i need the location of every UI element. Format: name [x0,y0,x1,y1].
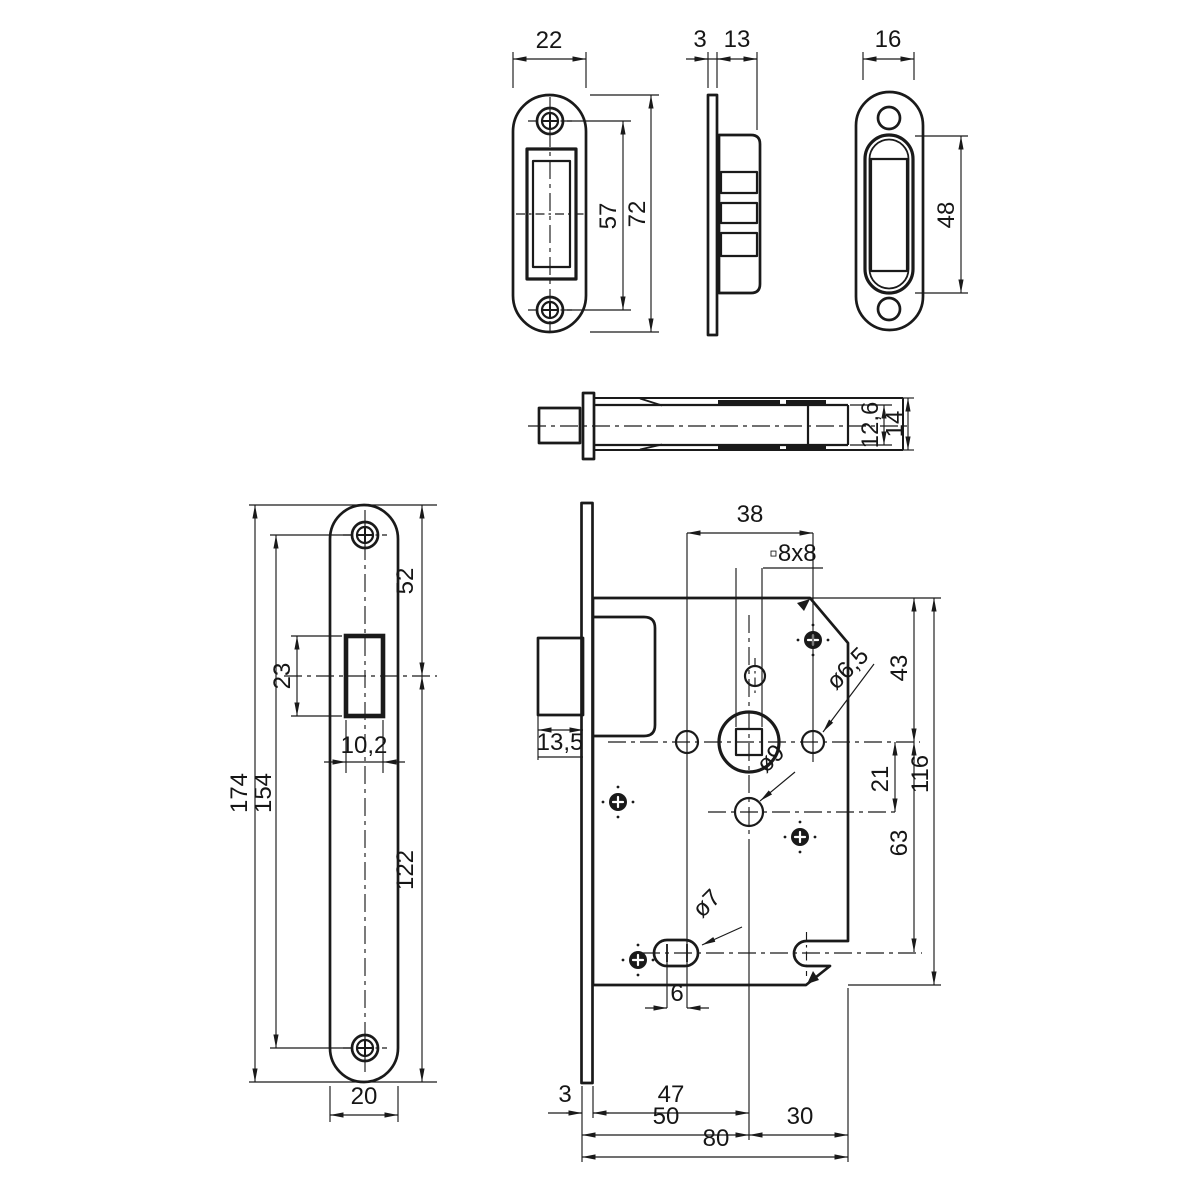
dim-spindle-to-rear-30: 30 [787,1103,814,1130]
dim-slot-to-bottom-122: 122 [392,850,419,890]
dim-bolt-height-12-6: 12,6 [857,402,884,449]
dim-plate-thickness-3: 3 [693,26,706,53]
dim-height-72: 72 [624,201,651,228]
dim-screw-spacing-154: 154 [250,773,277,813]
dim-screw-spacing-57: 57 [595,203,622,230]
dim-backset-50: 50 [653,1103,680,1130]
dim-hole-spacing-38: 38 [737,501,764,528]
dim-slot-height-23: 23 [269,663,296,690]
dim-bolt-protrusion-13-5: 13,5 [537,729,584,756]
dim-slot-height-48: 48 [933,202,960,229]
dim-top-to-spindle-43: 43 [886,655,913,682]
dim-total-height-14: 14 [882,411,909,438]
mortise-lock-drawing: 22 57 72 3 13 16 [0,0,1200,1200]
dim-spindle-to-hole-21: 21 [867,766,894,793]
dim-width-22: 22 [536,27,563,54]
dim-slot-length-6: 6 [670,980,683,1007]
dim-body-depth-13: 13 [724,26,751,53]
dim-body-width-16: 16 [875,26,902,53]
technical-drawing-canvas: 22 57 72 3 13 16 [0,0,1200,1200]
dim-width-20: 20 [351,1083,378,1110]
dim-slot-width-10-2: 10,2 [341,732,388,759]
dim-case-depth-80: 80 [703,1125,730,1152]
dim-faceplate-thickness-3: 3 [558,1081,571,1108]
dim-spindle-square-8x8: ▫8x8 [769,540,816,567]
dim-case-height-116: 116 [907,755,934,793]
paper-background [0,0,1200,1200]
dim-top-to-slot-52: 52 [392,568,419,595]
dim-total-height-174: 174 [226,773,253,813]
dim-spindle-to-slot-63: 63 [886,830,913,857]
